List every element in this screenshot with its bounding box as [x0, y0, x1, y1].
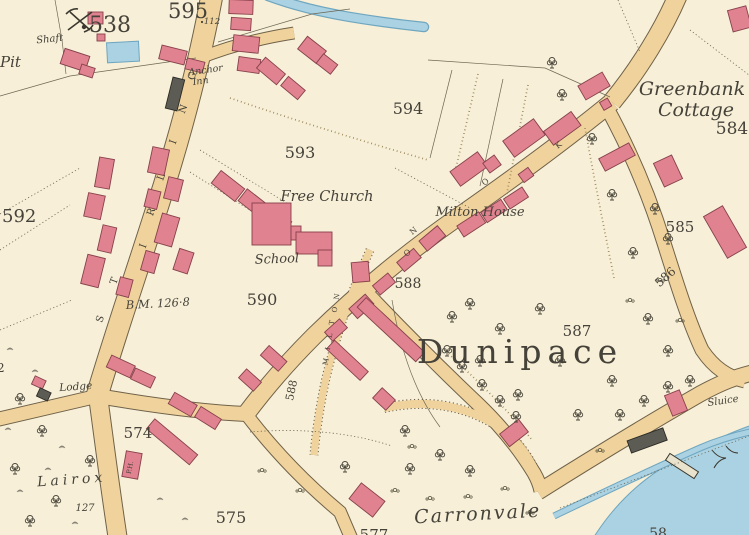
parcel-595: 595: [168, 0, 208, 23]
lodge-building: [31, 376, 46, 389]
parcel-574: 574: [124, 424, 153, 442]
parcel-587: 587: [563, 322, 592, 340]
parcel-592: 592: [2, 206, 36, 227]
svg-text:S: S: [94, 314, 107, 324]
parcel-590: 590: [247, 290, 278, 309]
roads-layer: [0, 0, 749, 535]
label-dunipace: Dunipace: [417, 332, 623, 371]
parcel-585: 585: [666, 218, 695, 236]
label-free-church: Free Church: [280, 189, 374, 205]
map-canvas: Pit Shaft Anchor Inn Greenbank Cottage F…: [0, 0, 749, 535]
label-pit: Pit: [0, 53, 22, 71]
label-shaft: Shaft: [36, 33, 65, 47]
parcel-588-road: 588: [283, 379, 300, 402]
parcel-588: 588: [395, 276, 422, 292]
label-carronvale: Carronvale: [414, 500, 542, 529]
parcel-538: 538: [89, 13, 131, 38]
label-benchmark: B.M. 126·8: [124, 295, 190, 312]
parcel-58-partial: 58: [649, 526, 667, 535]
label-lairox: Lairox: [36, 470, 107, 491]
parcel-594: 594: [393, 99, 424, 118]
svg-text:T: T: [108, 276, 121, 286]
label-milton-house: Milton House: [434, 205, 524, 220]
label-greenbank-1: Greenbank: [639, 78, 745, 100]
parcel-2-partial: 2: [0, 361, 5, 375]
free-church-building: [252, 203, 291, 245]
parcel-127: 127: [75, 503, 95, 514]
svg-text:N: N: [333, 293, 342, 300]
parcel-584: 584: [716, 119, 748, 139]
label-school: School: [254, 251, 299, 268]
historic-map-dunipace: Pit Shaft Anchor Inn Greenbank Cottage F…: [0, 0, 749, 535]
parcel-577: 577: [360, 526, 389, 535]
parcel-575: 575: [216, 508, 247, 527]
parcel-593: 593: [285, 143, 316, 162]
svg-text:M: M: [321, 357, 330, 365]
pond: [106, 41, 139, 63]
label-lodge: Lodge: [58, 380, 93, 394]
label-greenbank-2: Cottage: [658, 99, 734, 121]
